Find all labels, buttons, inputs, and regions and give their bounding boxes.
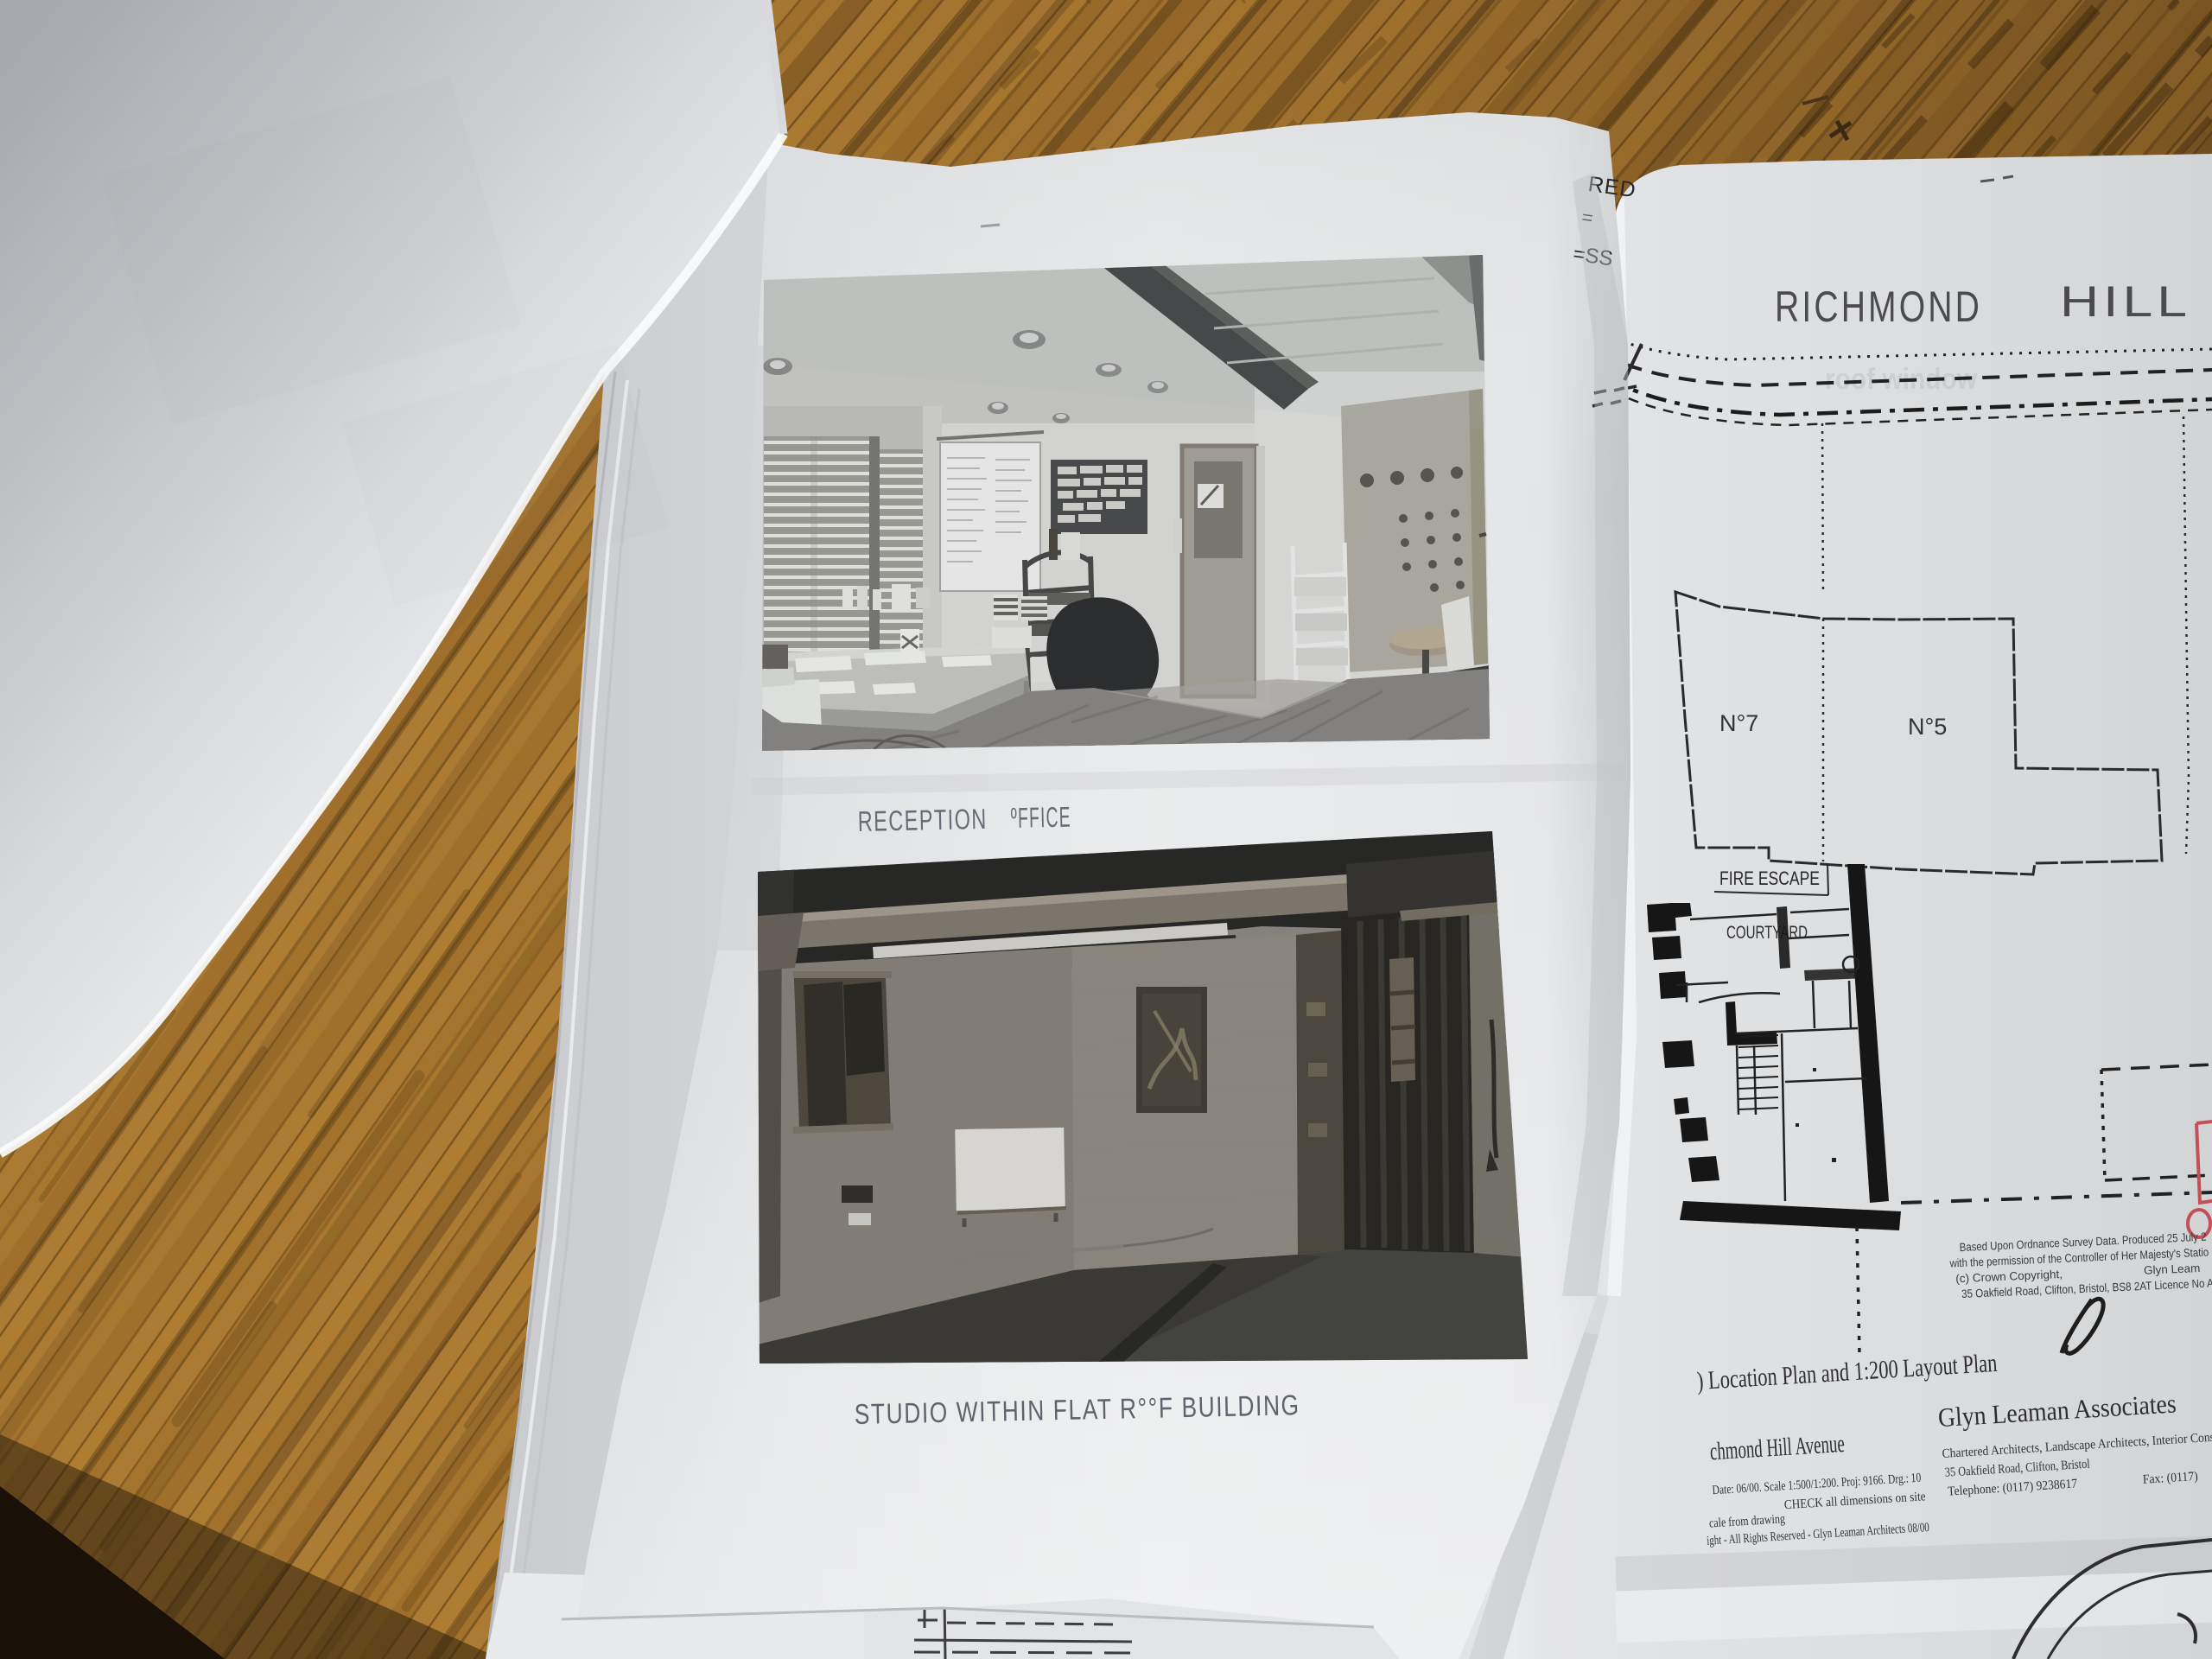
svg-text:RICHMOND: RICHMOND [1775,283,1982,331]
svg-text:RECEPTION: RECEPTION [857,803,988,837]
svg-text:Glyn Leam: Glyn Leam [2144,1262,2201,1277]
svg-text:HILL: HILL [2060,277,2191,326]
svg-text:ºFFICE: ºFFICE [1010,801,1071,834]
svg-text:FIRE ESCAPE: FIRE ESCAPE [1719,868,1820,889]
svg-text:N°5: N°5 [1908,714,1947,740]
svg-text:N°7: N°7 [1719,710,1758,736]
svg-text:COURTYARD: COURTYARD [1726,923,1808,943]
